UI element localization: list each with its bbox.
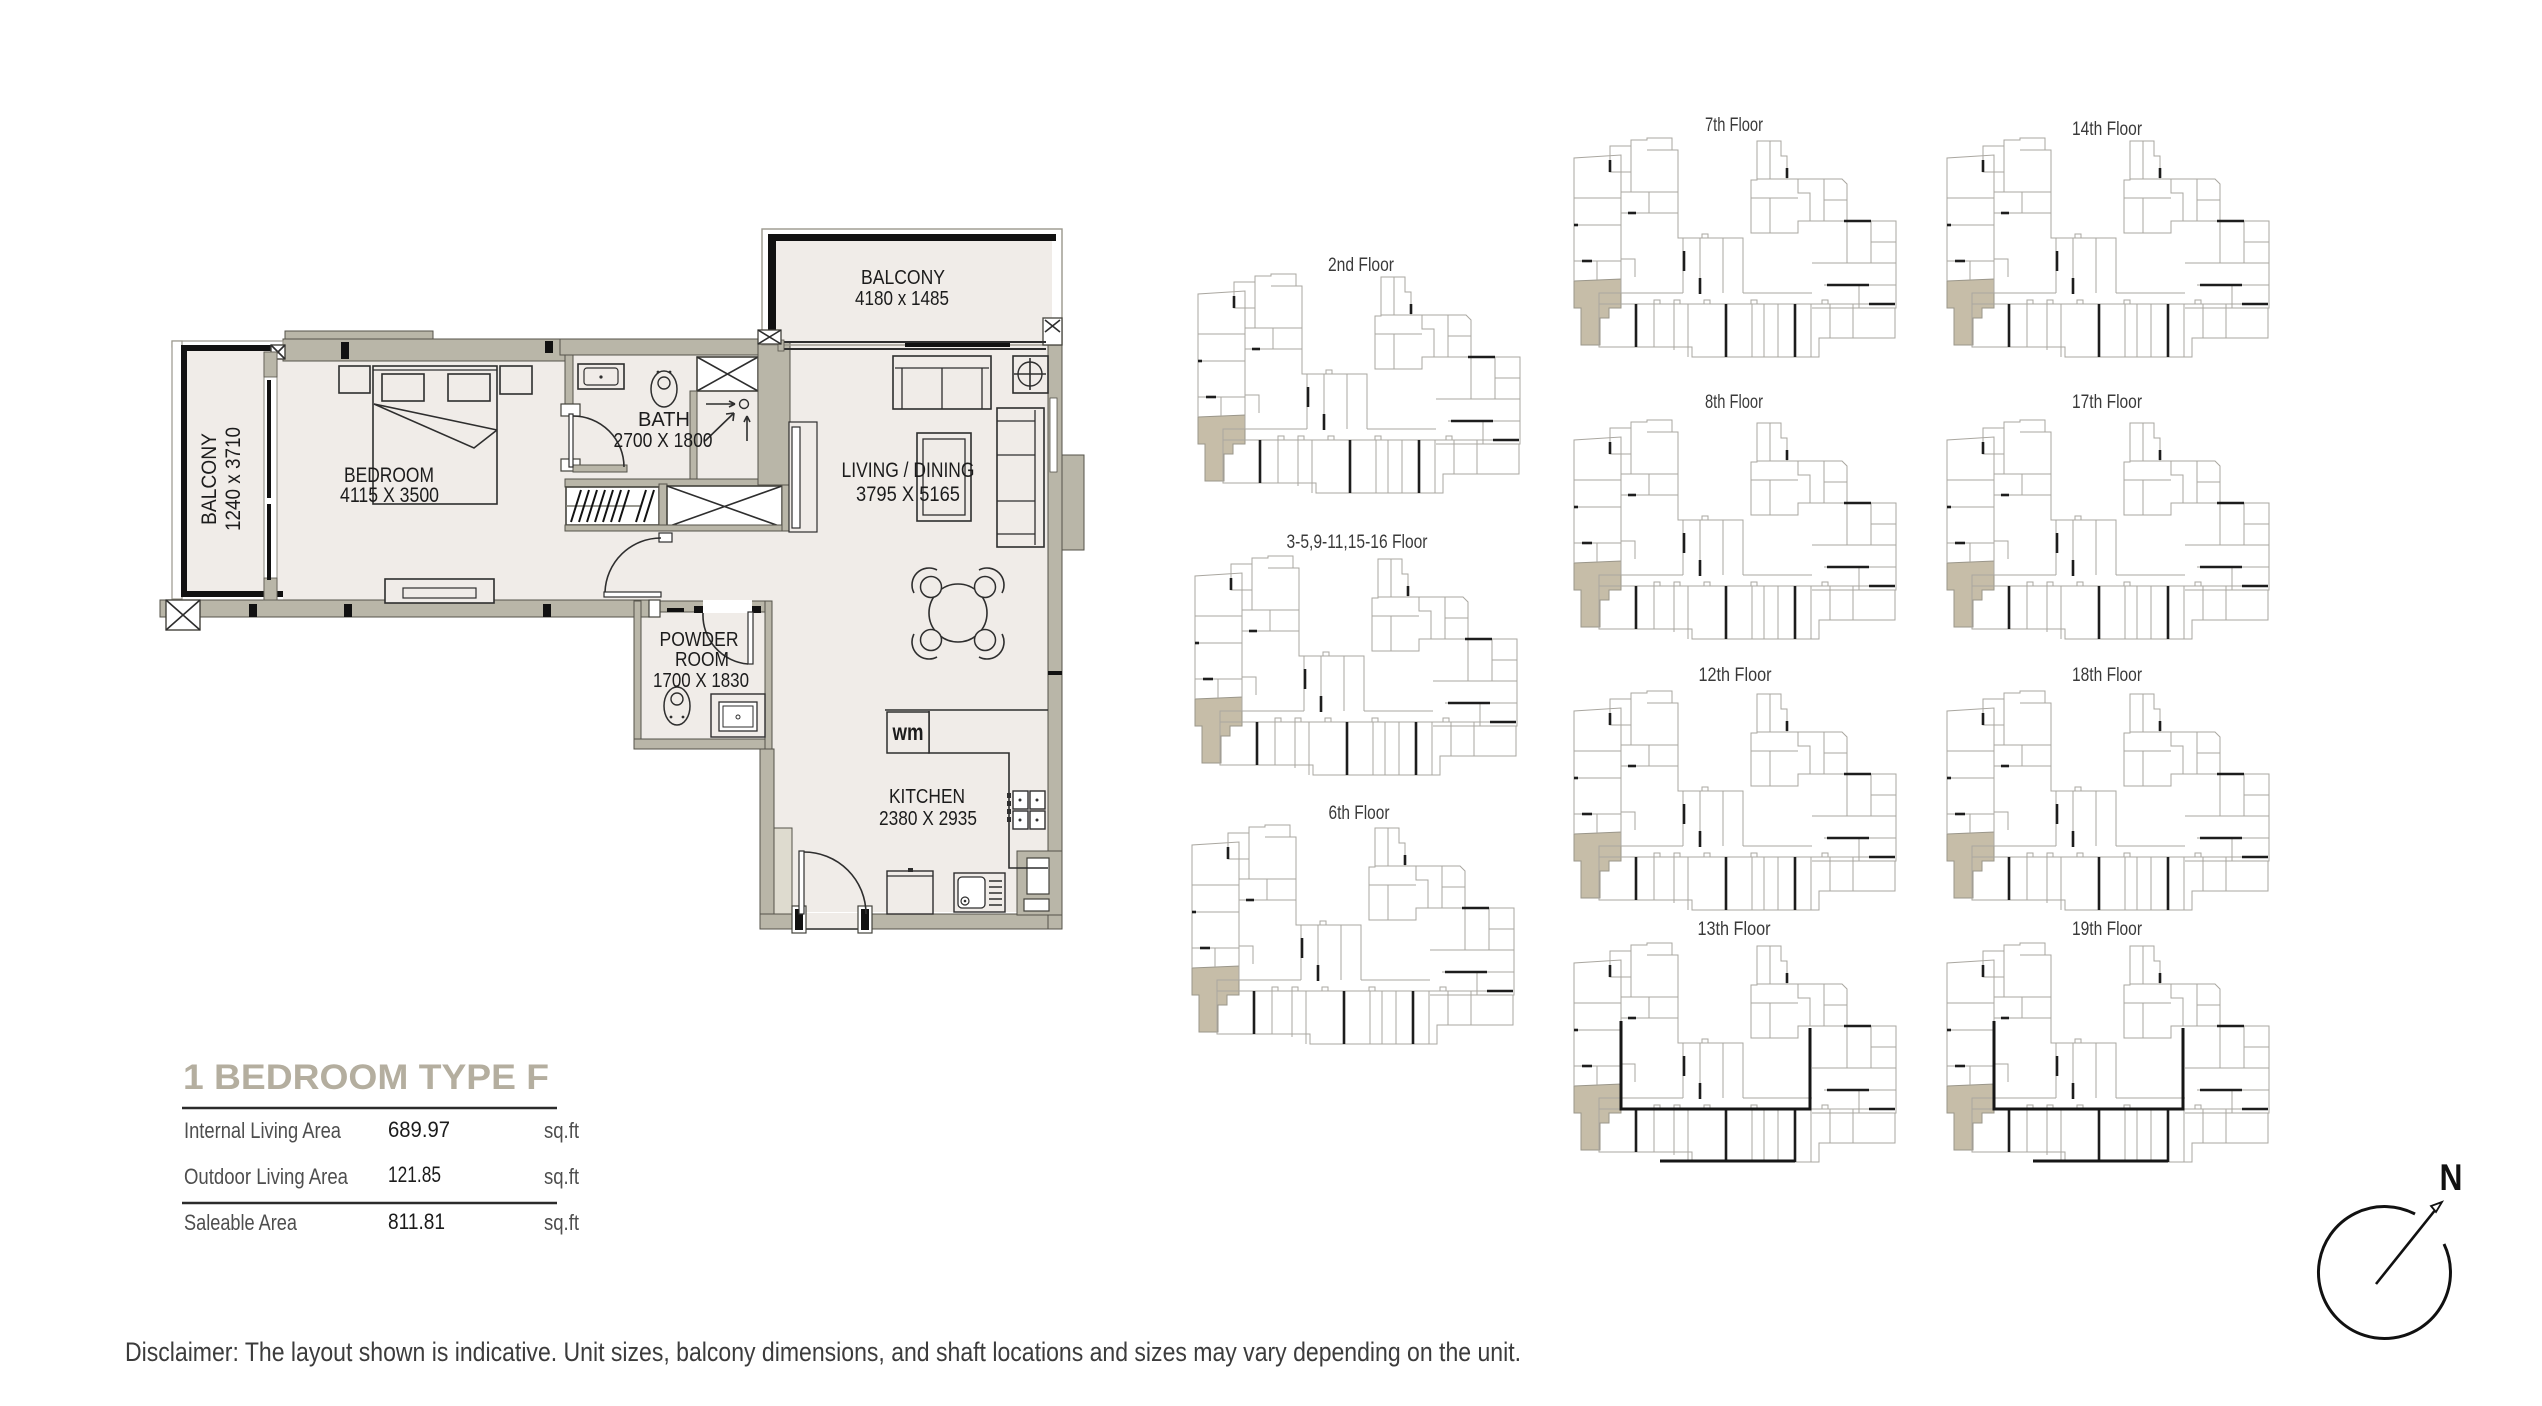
svg-text:sq.ft: sq.ft bbox=[544, 1118, 579, 1143]
svg-text:BATH: BATH bbox=[638, 409, 690, 431]
svg-text:KITCHEN: KITCHEN bbox=[889, 786, 965, 808]
svg-text:4115 X 3500: 4115 X 3500 bbox=[340, 484, 439, 507]
svg-text:12th Floor: 12th Floor bbox=[1699, 665, 1773, 686]
svg-text:8th Floor: 8th Floor bbox=[1705, 392, 1764, 413]
svg-text:2380 X 2935: 2380 X 2935 bbox=[879, 808, 977, 830]
svg-text:1700 X 1830: 1700 X 1830 bbox=[653, 670, 749, 692]
svg-text:sq.ft: sq.ft bbox=[544, 1210, 579, 1235]
svg-text:POWDER: POWDER bbox=[660, 629, 739, 651]
svg-text:3795 X 5165: 3795 X 5165 bbox=[856, 483, 960, 506]
svg-text:2700 X 1800: 2700 X 1800 bbox=[614, 430, 713, 452]
svg-text:ROOM: ROOM bbox=[675, 649, 729, 671]
svg-text:LIVING / DINING: LIVING / DINING bbox=[842, 459, 975, 482]
svg-text:4180 x 1485: 4180 x 1485 bbox=[855, 288, 949, 310]
svg-text:121.85: 121.85 bbox=[388, 1162, 441, 1187]
svg-text:Outdoor Living Area: Outdoor Living Area bbox=[184, 1164, 349, 1189]
svg-text:wm: wm bbox=[892, 719, 924, 745]
svg-text:14th Floor: 14th Floor bbox=[2072, 119, 2143, 140]
svg-text:3-5,9-11,15-16 Floor: 3-5,9-11,15-16 Floor bbox=[1287, 532, 1429, 553]
svg-text:811.81: 811.81 bbox=[388, 1209, 445, 1234]
svg-text:6th Floor: 6th Floor bbox=[1329, 803, 1391, 824]
svg-text:BALCONY: BALCONY bbox=[198, 433, 221, 525]
svg-text:N: N bbox=[2440, 1157, 2463, 1198]
svg-text:Internal Living Area: Internal Living Area bbox=[184, 1118, 342, 1143]
svg-text:689.97: 689.97 bbox=[388, 1117, 450, 1142]
svg-text:Disclaimer: The layout shown i: Disclaimer: The layout shown is indicati… bbox=[125, 1337, 1521, 1367]
svg-text:BALCONY: BALCONY bbox=[861, 267, 945, 289]
svg-text:1 BEDROOM TYPE F: 1 BEDROOM TYPE F bbox=[183, 1058, 549, 1097]
svg-text:sq.ft: sq.ft bbox=[544, 1164, 579, 1189]
svg-text:17th Floor: 17th Floor bbox=[2072, 392, 2143, 413]
svg-text:13th Floor: 13th Floor bbox=[1698, 919, 1772, 940]
svg-text:2nd Floor: 2nd Floor bbox=[1328, 255, 1395, 276]
svg-text:18th Floor: 18th Floor bbox=[2072, 665, 2143, 686]
svg-text:7th Floor: 7th Floor bbox=[1705, 115, 1764, 136]
svg-text:1240 x 3710: 1240 x 3710 bbox=[222, 427, 245, 531]
svg-text:19th Floor: 19th Floor bbox=[2072, 919, 2143, 940]
svg-text:Saleable Area: Saleable Area bbox=[184, 1210, 298, 1235]
